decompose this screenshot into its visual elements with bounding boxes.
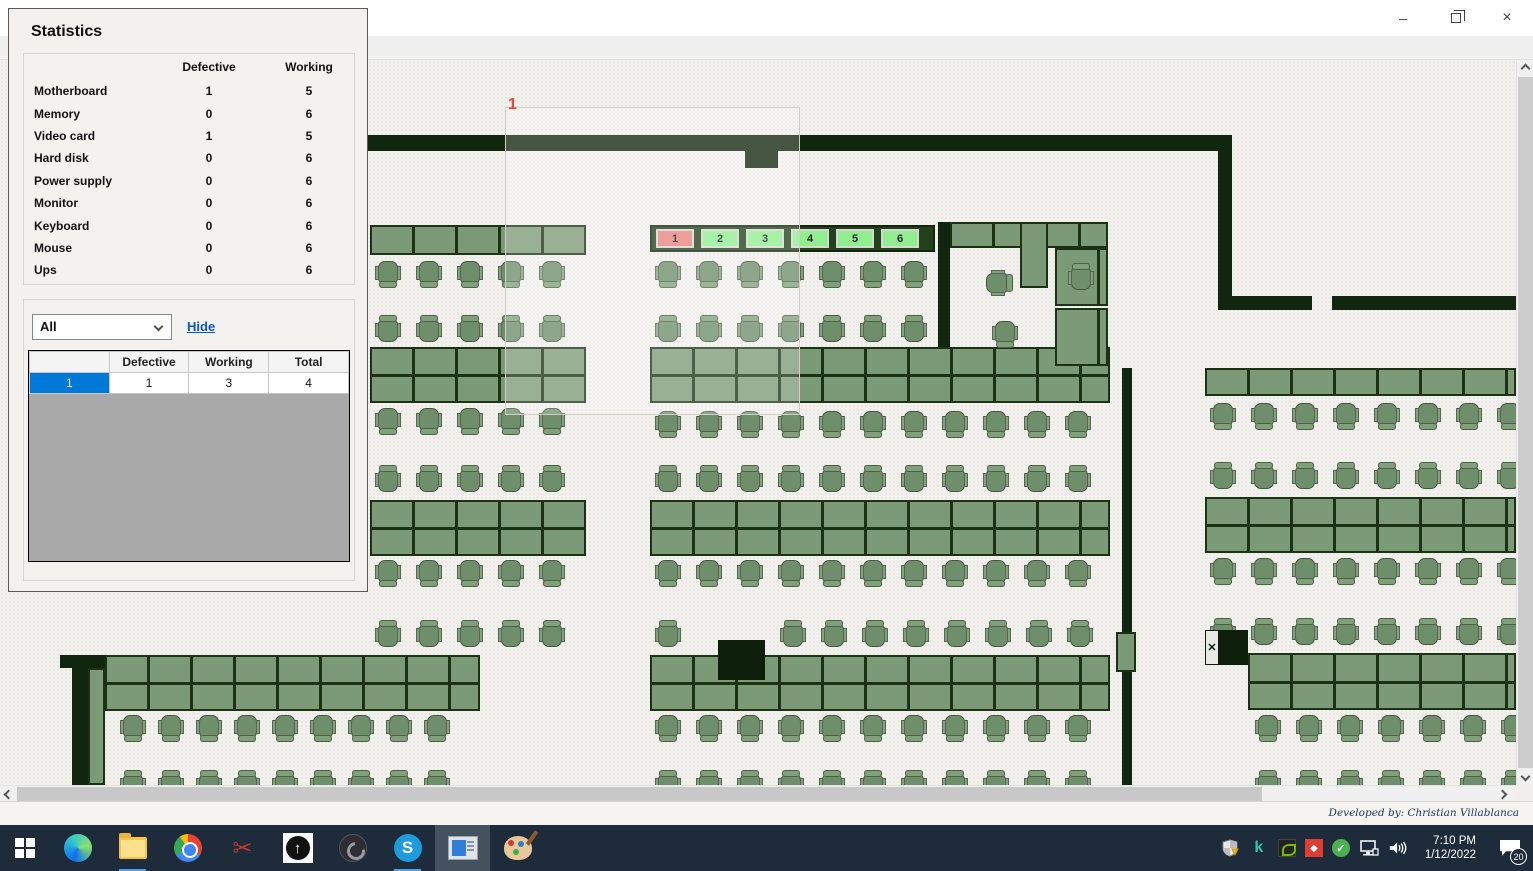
chair-icon	[1255, 712, 1281, 742]
chair-icon	[416, 557, 442, 587]
chair-icon	[1333, 555, 1359, 585]
wall	[1122, 368, 1132, 785]
chair-icon	[778, 770, 804, 785]
component-name: Keyboard	[24, 214, 154, 236]
chair-icon	[1210, 555, 1236, 585]
chair-icon	[120, 712, 146, 742]
grid-row-header[interactable]: 1	[30, 373, 110, 394]
chair-icon	[1378, 712, 1404, 742]
taskbar-chrome[interactable]	[160, 825, 215, 871]
component-row: Motherboard15	[24, 80, 354, 102]
grid-cell-working: 3	[189, 373, 269, 394]
component-row: Memory06	[24, 102, 354, 124]
notification-center-button[interactable]: 20	[1493, 825, 1527, 871]
chair-icon	[498, 620, 524, 650]
grid-column-header: Total	[269, 352, 349, 373]
chair-icon	[539, 620, 565, 650]
chair-icon	[1337, 712, 1363, 742]
chevron-down-icon	[154, 322, 164, 332]
component-row: Hard disk06	[24, 147, 354, 169]
component-working: 5	[264, 80, 354, 102]
chair-icon	[1374, 618, 1400, 648]
chair-icon	[498, 465, 524, 495]
chair-icon	[985, 620, 1011, 650]
component-working: 6	[264, 237, 354, 259]
chair-icon	[1024, 770, 1050, 785]
chair-icon	[1456, 462, 1482, 492]
chair-icon	[901, 712, 927, 742]
station-5-working[interactable]: 5	[836, 229, 874, 248]
chair-icon	[416, 405, 442, 435]
scroll-right-arrow[interactable]	[1494, 786, 1511, 802]
kite-icon[interactable]: k	[1249, 838, 1269, 858]
chair-icon	[819, 408, 845, 438]
chair-icon	[234, 770, 260, 785]
chair-icon	[778, 557, 804, 587]
edge-icon	[64, 834, 92, 862]
statistics-title: Statistics	[31, 23, 102, 41]
chair-icon	[780, 620, 806, 650]
chair-icon	[655, 620, 681, 650]
chair-icon	[901, 315, 927, 345]
chair-icon	[942, 770, 968, 785]
chair-icon	[860, 315, 886, 345]
chair-icon	[1415, 618, 1441, 648]
chair-icon	[983, 270, 1013, 296]
close-button[interactable]: ×	[1484, 0, 1530, 36]
door-x-icon: ✕	[1205, 630, 1219, 665]
chair-icon	[375, 405, 401, 435]
chair-icon	[272, 712, 298, 742]
system-tray: k ◆ ✓ 7:10 PM 1/12/2022 20	[1220, 825, 1533, 871]
component-row: Video card15	[24, 125, 354, 147]
chair-icon	[1065, 557, 1091, 587]
taskbar-edge[interactable]	[50, 825, 105, 871]
grid-column-header: Defective	[109, 352, 189, 373]
chair-icon	[655, 557, 681, 587]
media-app-icon[interactable]: ◆	[1305, 839, 1323, 857]
chair-icon	[386, 712, 412, 742]
vertical-scrollbar-thumb[interactable]	[1518, 77, 1533, 768]
chair-icon	[901, 408, 927, 438]
chair-icon	[1251, 618, 1277, 648]
chair-icon	[1292, 462, 1318, 492]
developer-credit: Developed by: Christian Villablanca	[1329, 807, 1519, 819]
chair-icon	[1501, 770, 1516, 785]
wall-door	[1116, 632, 1136, 672]
chair-icon	[120, 770, 146, 785]
selection-label: 1	[508, 96, 517, 114]
chair-icon	[983, 465, 1009, 495]
chair-icon	[310, 712, 336, 742]
chair-icon	[457, 315, 483, 345]
chair-icon	[539, 557, 565, 587]
desk-strip	[1205, 497, 1516, 553]
chair-icon	[424, 770, 450, 785]
hide-link[interactable]: Hide	[187, 319, 215, 334]
chair-icon	[696, 712, 722, 742]
chair-icon	[1456, 555, 1482, 585]
chair-icon	[1415, 400, 1441, 430]
chair-icon	[1419, 770, 1445, 785]
chair-icon	[1210, 462, 1236, 492]
chair-icon	[860, 258, 886, 288]
chair-icon	[860, 770, 886, 785]
chair-icon	[457, 258, 483, 288]
component-defective: 1	[154, 80, 264, 102]
component-name: Monitor	[24, 192, 154, 214]
filter-dropdown-value: All	[40, 319, 57, 334]
chair-icon	[1333, 462, 1359, 492]
chair-icon	[737, 557, 763, 587]
defective-column-header: Defective	[154, 54, 264, 80]
nvidia-icon[interactable]	[1278, 839, 1296, 857]
chair-icon	[1378, 770, 1404, 785]
chair-icon	[903, 620, 929, 650]
desk-strip	[1205, 368, 1516, 396]
wall	[1332, 296, 1516, 310]
chair-icon	[1024, 408, 1050, 438]
windows-logo-icon	[15, 838, 35, 858]
paint-icon	[504, 836, 532, 860]
chair-icon	[457, 405, 483, 435]
obs-icon	[339, 834, 367, 862]
desk-strip	[370, 500, 586, 556]
chair-icon	[457, 557, 483, 587]
chair-icon	[737, 770, 763, 785]
vertical-scrollbar[interactable]	[1516, 60, 1533, 785]
grid-column-header	[30, 352, 110, 373]
component-row: Mouse06	[24, 237, 354, 259]
chair-icon	[655, 770, 681, 785]
chair-icon	[1292, 400, 1318, 430]
scroll-left-arrow[interactable]	[0, 786, 17, 802]
chair-icon	[983, 408, 1009, 438]
chair-icon	[819, 465, 845, 495]
chair-icon	[821, 620, 847, 650]
component-row: Ups06	[24, 259, 354, 281]
chair-icon	[778, 712, 804, 742]
component-working: 5	[264, 125, 354, 147]
chair-icon	[901, 770, 927, 785]
component-defective: 0	[154, 102, 264, 124]
clock-date: 1/12/2022	[1425, 848, 1476, 862]
monitoring-app-icon	[448, 836, 478, 860]
taskbar-snipping-tool[interactable]: ✂	[215, 825, 270, 871]
chair-icon	[819, 258, 845, 288]
chair-icon	[1374, 462, 1400, 492]
filter-dropdown[interactable]: All	[32, 314, 172, 340]
chair-icon	[1024, 557, 1050, 587]
component-defective: 0	[154, 147, 264, 169]
chair-icon	[901, 258, 927, 288]
scroll-down-arrow[interactable]	[1517, 768, 1533, 785]
chair-icon	[655, 712, 681, 742]
chair-icon	[416, 258, 442, 288]
component-name: Motherboard	[24, 80, 154, 102]
chair-icon	[862, 620, 888, 650]
component-defective: 1	[154, 125, 264, 147]
desk-strip	[88, 668, 105, 785]
component-defective: 0	[154, 192, 264, 214]
chair-icon	[1067, 620, 1093, 650]
chair-icon	[348, 770, 374, 785]
chair-icon	[424, 712, 450, 742]
chair-icon	[992, 318, 1018, 348]
component-defective: 0	[154, 170, 264, 192]
chair-icon	[1333, 400, 1359, 430]
chair-icon	[416, 465, 442, 495]
status-strip: Developed by: Christian Villablanca	[0, 801, 1533, 825]
volume-icon[interactable]	[1388, 838, 1408, 858]
start-button[interactable]	[0, 825, 50, 871]
chair-icon	[1065, 465, 1091, 495]
filter-groupbox: All Hide DefectiveWorkingTotal 1134	[23, 299, 355, 581]
grid-cell-defective: 1	[109, 373, 189, 394]
desk-strip	[105, 655, 480, 711]
chair-icon	[901, 557, 927, 587]
working-column-header: Working	[264, 54, 354, 80]
sync-ok-icon[interactable]: ✓	[1332, 839, 1350, 857]
chair-icon	[1497, 462, 1516, 492]
chair-icon	[860, 408, 886, 438]
chair-icon	[1497, 400, 1516, 430]
chair-icon	[1501, 712, 1516, 742]
chair-icon	[375, 620, 401, 650]
snipping-tool-icon: ✂	[232, 834, 252, 863]
chair-icon	[942, 408, 968, 438]
desk-strip	[650, 500, 1110, 556]
chair-icon	[1497, 618, 1516, 648]
component-name: Memory	[24, 102, 154, 124]
chair-icon	[1497, 555, 1516, 585]
chair-icon	[1333, 618, 1359, 648]
taskbar-clock[interactable]: 7:10 PM 1/12/2022	[1417, 834, 1484, 862]
restore-button[interactable]	[1433, 0, 1479, 36]
chair-icon	[1419, 712, 1445, 742]
component-working: 6	[264, 170, 354, 192]
chair-icon	[196, 712, 222, 742]
component-row: Power supply06	[24, 170, 354, 192]
component-row: Monitor06	[24, 192, 354, 214]
chair-icon	[272, 770, 298, 785]
components-groupbox: Defective Working Motherboard15Memory06V…	[23, 53, 355, 285]
chair-icon	[375, 557, 401, 587]
chair-icon	[1251, 400, 1277, 430]
chair-icon	[1065, 712, 1091, 742]
uploader-icon: ↑	[283, 833, 313, 863]
restore-icon	[1451, 13, 1461, 23]
wall	[1218, 135, 1232, 310]
chair-icon	[1460, 770, 1486, 785]
horizontal-scrollbar[interactable]	[0, 785, 1516, 801]
chair-icon	[1456, 618, 1482, 648]
chair-icon	[655, 465, 681, 495]
chair-icon	[375, 465, 401, 495]
chair-icon	[1024, 465, 1050, 495]
chair-icon	[1065, 408, 1091, 438]
chair-icon	[1460, 712, 1486, 742]
chair-icon	[778, 465, 804, 495]
chair-icon	[196, 770, 222, 785]
statistics-panel: Statistics Defective Working Motherboard…	[8, 8, 368, 592]
chair-icon	[348, 712, 374, 742]
chair-icon	[1026, 620, 1052, 650]
chair-icon	[1251, 462, 1277, 492]
chair-icon	[457, 620, 483, 650]
desk-strip	[1248, 653, 1516, 710]
chrome-icon	[174, 834, 202, 862]
chair-icon	[457, 465, 483, 495]
chair-icon	[860, 557, 886, 587]
chair-icon	[375, 315, 401, 345]
taskbar-skype[interactable]: S	[380, 825, 435, 871]
scroll-up-arrow[interactable]	[1517, 60, 1533, 77]
chair-icon	[942, 465, 968, 495]
taskbar: ✂ ↑ S k ◆ ✓ 7:10 PM 1/12/2022 20	[0, 825, 1533, 871]
wall	[368, 135, 1232, 151]
grid-row[interactable]: 1134	[30, 373, 349, 394]
chair-icon	[158, 770, 184, 785]
notification-badge: 20	[1510, 848, 1527, 865]
grid-column-header: Working	[189, 352, 269, 373]
chair-icon	[1374, 555, 1400, 585]
defender-shield-icon[interactable]	[1220, 838, 1240, 858]
desk-strip	[1020, 222, 1048, 288]
network-icon[interactable]	[1359, 838, 1379, 858]
chair-icon	[819, 315, 845, 345]
chair-icon	[942, 712, 968, 742]
chair-icon	[1415, 462, 1441, 492]
component-name: Mouse	[24, 237, 154, 259]
chair-icon	[819, 712, 845, 742]
component-working: 6	[264, 214, 354, 236]
file-explorer-icon	[119, 837, 147, 859]
chair-icon	[416, 620, 442, 650]
chair-icon	[416, 315, 442, 345]
chair-icon	[1024, 712, 1050, 742]
chair-icon	[1068, 263, 1094, 293]
chair-icon	[696, 465, 722, 495]
chair-icon	[1065, 770, 1091, 785]
chair-icon	[498, 557, 524, 587]
chair-icon	[983, 770, 1009, 785]
component-defective: 0	[154, 259, 264, 281]
taskbar-obs-studio[interactable]	[325, 825, 380, 871]
component-name: Power supply	[24, 170, 154, 192]
chair-icon	[386, 770, 412, 785]
chair-icon	[1337, 770, 1363, 785]
chair-icon	[901, 465, 927, 495]
chair-icon	[696, 557, 722, 587]
chair-icon	[819, 557, 845, 587]
component-working: 6	[264, 147, 354, 169]
chair-icon	[1456, 400, 1482, 430]
chair-icon	[234, 712, 260, 742]
chair-icon	[696, 770, 722, 785]
component-row: Keyboard06	[24, 214, 354, 236]
chair-icon	[1255, 770, 1281, 785]
component-working: 6	[264, 192, 354, 214]
desk-strip	[1055, 308, 1108, 366]
component-defective: 0	[154, 237, 264, 259]
chair-icon	[539, 465, 565, 495]
taskbar-monitoring-app[interactable]	[435, 825, 490, 871]
taskbar-file-explorer[interactable]	[105, 825, 160, 871]
components-table: Defective Working Motherboard15Memory06V…	[24, 54, 354, 282]
chair-icon	[1415, 555, 1441, 585]
clock-time: 7:10 PM	[1425, 834, 1476, 848]
chair-icon	[158, 712, 184, 742]
chair-icon	[983, 557, 1009, 587]
component-name: Ups	[24, 259, 154, 281]
chair-icon	[737, 712, 763, 742]
chair-icon	[1292, 555, 1318, 585]
defects-grid[interactable]: DefectiveWorkingTotal 1134	[28, 350, 350, 562]
chair-icon	[1374, 400, 1400, 430]
pillar	[718, 640, 765, 680]
horizontal-scrollbar-thumb[interactable]	[17, 787, 1262, 801]
skype-icon: S	[394, 834, 422, 862]
grid-cell-total: 4	[269, 373, 349, 394]
selection-rectangle	[505, 107, 800, 415]
chair-icon	[310, 770, 336, 785]
chair-icon	[942, 557, 968, 587]
chair-icon	[1296, 712, 1322, 742]
wall	[1232, 296, 1312, 310]
component-defective: 0	[154, 214, 264, 236]
taskbar-paint[interactable]	[490, 825, 545, 871]
chair-icon	[1210, 400, 1236, 430]
chair-icon	[1292, 618, 1318, 648]
component-working: 6	[264, 259, 354, 281]
chair-icon	[1251, 555, 1277, 585]
chair-icon	[860, 465, 886, 495]
chair-icon	[983, 712, 1009, 742]
chair-icon	[737, 465, 763, 495]
station-6-working[interactable]: 6	[881, 229, 919, 248]
taskbar-uploader-app[interactable]: ↑	[270, 825, 325, 871]
component-working: 6	[264, 102, 354, 124]
chair-icon	[375, 258, 401, 288]
minimize-button[interactable]: –	[1380, 0, 1426, 36]
component-name: Video card	[24, 125, 154, 147]
chair-icon	[944, 620, 970, 650]
component-name: Hard disk	[24, 147, 154, 169]
chair-icon	[1296, 770, 1322, 785]
chair-icon	[819, 770, 845, 785]
chair-icon	[860, 712, 886, 742]
